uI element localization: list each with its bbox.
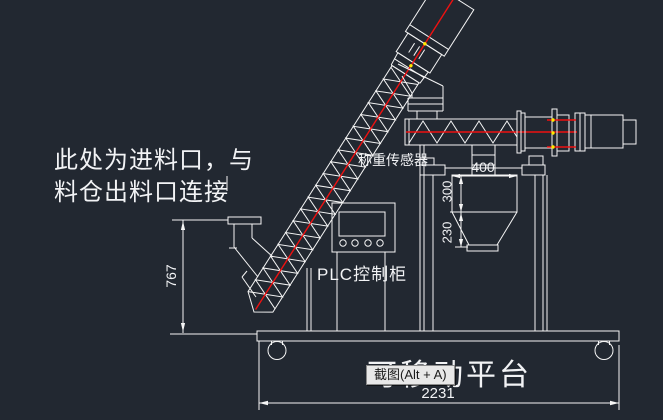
dimension-300-text: 300 (440, 177, 455, 207)
cad-viewport[interactable]: 此处为进料口，与 料仓出料口连接 称重传感器 PLC控制柜 可移动平台 400 … (0, 0, 663, 420)
plc-cabinet-buttons (340, 240, 383, 246)
inlet-annotation: 此处为进料口，与 料仓出料口连接 (54, 145, 254, 209)
inclined-conveyor-motor (394, 0, 474, 75)
dimension-767-text: 767 (163, 259, 179, 293)
dimension-300 (459, 176, 463, 212)
load-cell-label: 称重传感器 (358, 150, 428, 170)
dimension-767 (170, 220, 257, 334)
dimension-2231-text: 2231 (415, 385, 461, 402)
feed-inlet-funnel (228, 217, 273, 297)
plc-cabinet-label: PLC控制柜 (317, 260, 407, 285)
cad-drawing (0, 0, 663, 420)
dimension-400-text: 400 (463, 159, 503, 175)
conveyor-support-posts (307, 268, 311, 331)
inlet-annotation-line1: 此处为进料口，与 (54, 145, 254, 177)
plc-cabinet-screen (339, 212, 385, 236)
transition-chute (398, 64, 443, 119)
screenshot-tooltip: 截图(Alt + A) (366, 365, 455, 385)
wheel-left (268, 341, 286, 360)
dimension-230-text: 230 (440, 218, 455, 248)
horizontal-screw-conveyor (405, 119, 577, 145)
wheel-right (595, 341, 613, 360)
inlet-annotation-line2: 料仓出料口连接 (54, 177, 254, 209)
